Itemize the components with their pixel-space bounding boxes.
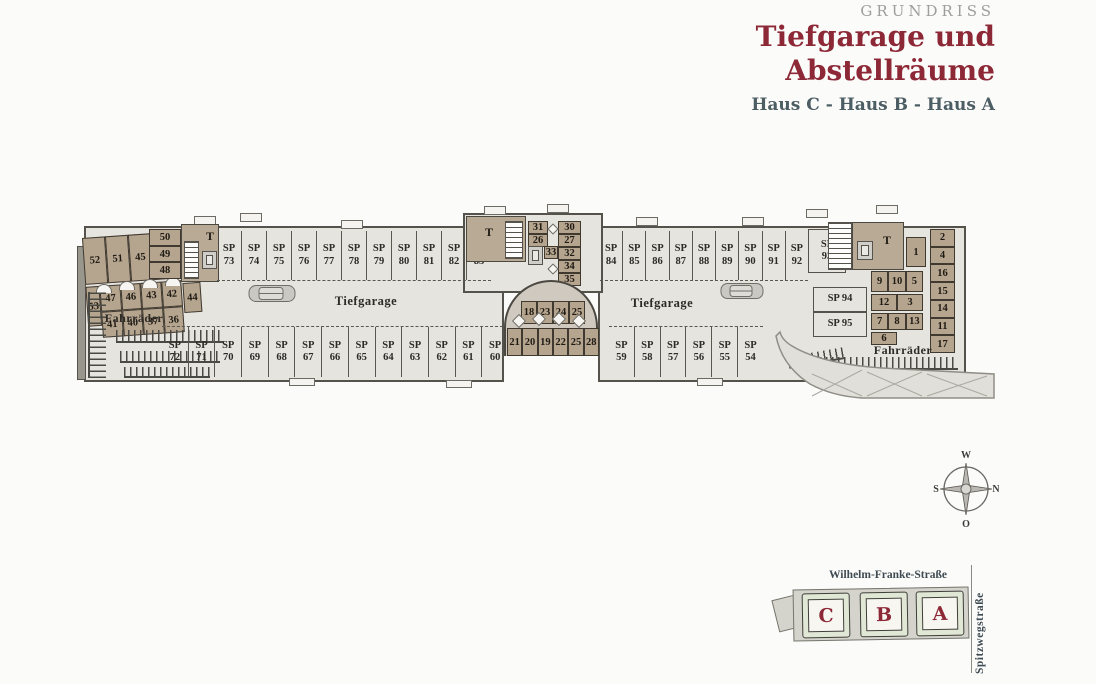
wall-stub bbox=[547, 204, 569, 213]
spot-prefix: SP bbox=[409, 340, 421, 352]
storage-room: 5 bbox=[906, 271, 923, 292]
storage-room: 16 bbox=[930, 264, 955, 282]
spot-number: 74 bbox=[249, 256, 260, 268]
parking-spot: SP74 bbox=[241, 231, 266, 280]
spot-prefix: SP bbox=[223, 243, 235, 255]
compass-rose: W N O S bbox=[933, 448, 999, 530]
parking-spot: SP71 bbox=[188, 327, 215, 377]
compass-left: S bbox=[933, 484, 939, 495]
plot-haus-b: B bbox=[860, 592, 909, 638]
spot-number: 82 bbox=[449, 256, 460, 268]
spot-number: 67 bbox=[303, 352, 314, 364]
storage-room: 31 bbox=[528, 221, 548, 234]
plot-haus-c: C bbox=[802, 593, 851, 639]
room-number: 15 bbox=[937, 286, 948, 297]
spot-number: 60 bbox=[490, 352, 501, 364]
storage-cluster-row1: 9105 bbox=[871, 271, 923, 292]
spot-number: 62 bbox=[436, 352, 447, 364]
parking-spot: SP69 bbox=[241, 327, 268, 377]
spot-number: 61 bbox=[463, 352, 474, 364]
storage-room: 22 bbox=[553, 328, 568, 356]
building-outline: A bbox=[922, 597, 959, 631]
room-number: 30 bbox=[564, 222, 575, 233]
spot-number: 70 bbox=[223, 352, 234, 364]
room-number: 26 bbox=[533, 235, 544, 246]
building-letter: B bbox=[876, 603, 892, 625]
room-number: 43 bbox=[146, 289, 157, 301]
building-outline: C bbox=[808, 599, 845, 633]
parking-spot: SP64 bbox=[375, 327, 402, 377]
street-label-top: Wilhelm-Franke-Straße bbox=[798, 569, 978, 581]
garage-label-left: Tiefgarage bbox=[316, 294, 416, 309]
parking-spot: SP68 bbox=[268, 327, 295, 377]
storage-room: 7 bbox=[871, 313, 888, 330]
room-number: 14 bbox=[937, 303, 948, 314]
spot-number: 56 bbox=[694, 352, 705, 364]
spot-prefix: SP bbox=[249, 340, 261, 352]
storage-room: 48 bbox=[149, 262, 181, 279]
storage-room: 30 bbox=[558, 221, 581, 234]
garage-label-right: Tiefgarage bbox=[612, 296, 712, 311]
parking-spot: SP59 bbox=[609, 327, 634, 377]
storage-room: 8 bbox=[888, 313, 905, 330]
spot-prefix: SP bbox=[675, 243, 687, 255]
parking-spot: SP84 bbox=[600, 231, 622, 280]
parking-spot: SP57 bbox=[660, 327, 686, 377]
spot-prefix: SP bbox=[382, 340, 394, 352]
parking-spot: SP76 bbox=[291, 231, 316, 280]
spot-label: SP 94 bbox=[828, 293, 853, 305]
spot-number: 89 bbox=[722, 256, 733, 268]
spot-number: 69 bbox=[250, 352, 261, 364]
parking-spot: SP85 bbox=[622, 231, 645, 280]
storage-room: 14 bbox=[930, 300, 955, 318]
stairwell-left: T bbox=[181, 224, 219, 282]
room-number: 50 bbox=[160, 232, 171, 243]
spot-prefix: SP bbox=[605, 243, 617, 255]
spot-number: 84 bbox=[606, 256, 617, 268]
page-title-line1: Tiefgarage und bbox=[751, 20, 995, 54]
spot-number: 55 bbox=[719, 352, 730, 364]
storage-room: 50 bbox=[149, 229, 181, 246]
spot-prefix: SP bbox=[698, 243, 710, 255]
parking-spot: SP89 bbox=[715, 231, 738, 280]
parking-row-bottom-left: SP72SP71SP70SP69SP68SP67SP66SP65SP64SP63… bbox=[162, 326, 508, 377]
spot-prefix: SP bbox=[615, 340, 627, 352]
car-icon bbox=[248, 284, 296, 308]
room-number: 34 bbox=[564, 261, 575, 272]
storage-room: 10 bbox=[888, 271, 905, 292]
parking-spot: SP91 bbox=[762, 231, 785, 280]
room-number: 7 bbox=[877, 316, 882, 327]
page-title-line2: Abstellräume bbox=[751, 54, 995, 88]
spot-prefix: SP bbox=[275, 340, 287, 352]
parking-spot: SP72 bbox=[162, 327, 188, 377]
spot-prefix: SP bbox=[348, 243, 360, 255]
spot-number: 68 bbox=[276, 352, 287, 364]
storage-room: 1 bbox=[906, 237, 926, 267]
room-number: 49 bbox=[160, 249, 171, 260]
parking-spot: SP79 bbox=[366, 231, 391, 280]
spot-number: 79 bbox=[374, 256, 385, 268]
storage-room: 3 bbox=[897, 294, 923, 311]
elevator-icon bbox=[528, 246, 543, 265]
spot-number: 80 bbox=[399, 256, 410, 268]
elevator-icon bbox=[857, 241, 873, 260]
room-number: 51 bbox=[112, 253, 123, 265]
room-number: 45 bbox=[135, 252, 146, 264]
spot-number: 63 bbox=[410, 352, 421, 364]
plot-haus-a: A bbox=[916, 591, 965, 637]
compass-top: W bbox=[961, 450, 971, 461]
page-subtitle: Haus C - Haus B - Haus A bbox=[751, 95, 995, 115]
spot-number: 76 bbox=[299, 256, 310, 268]
spot-prefix: SP bbox=[721, 243, 733, 255]
storage-room: 19 bbox=[538, 328, 553, 356]
compass-right: N bbox=[992, 484, 999, 495]
spot-number: 87 bbox=[676, 256, 687, 268]
spot-prefix: SP bbox=[719, 340, 731, 352]
room-number: 31 bbox=[533, 222, 544, 233]
storage-room: 9 bbox=[871, 271, 888, 292]
room-number: 32 bbox=[564, 248, 575, 259]
spot-number: 71 bbox=[196, 352, 207, 364]
room-number: 25 bbox=[571, 337, 582, 348]
parking-spot: SP67 bbox=[294, 327, 321, 377]
parking-spot: SP56 bbox=[685, 327, 711, 377]
stairs-icon bbox=[184, 241, 199, 279]
building-outline: B bbox=[866, 598, 903, 632]
parking-spot: SP58 bbox=[634, 327, 660, 377]
door-swing bbox=[547, 223, 558, 234]
wall-stub bbox=[876, 205, 898, 214]
spot-prefix: SP bbox=[248, 243, 260, 255]
parking-spot: SP86 bbox=[645, 231, 668, 280]
room-number: 3 bbox=[907, 297, 912, 308]
room-number: 9 bbox=[877, 276, 882, 287]
stairwell-label: T bbox=[485, 225, 493, 240]
wall-stub bbox=[289, 378, 315, 386]
spot-number: 54 bbox=[745, 352, 756, 364]
spot-prefix: SP bbox=[744, 340, 756, 352]
parking-spot: SP87 bbox=[669, 231, 692, 280]
spot-prefix: SP bbox=[462, 340, 474, 352]
parking-spot: SP81 bbox=[416, 231, 441, 280]
parking-spot: SP63 bbox=[401, 327, 428, 377]
spot-prefix: SP bbox=[169, 340, 181, 352]
spot-prefix: SP bbox=[693, 340, 705, 352]
spot-prefix: SP bbox=[323, 243, 335, 255]
parking-spot: SP55 bbox=[711, 327, 737, 377]
storage-stack-left: 504948 bbox=[149, 229, 181, 279]
storage-room: 4 bbox=[930, 247, 955, 265]
parking-row-top-left: SP73SP74SP75SP76SP77SP78SP79SP80SP81SP82… bbox=[217, 231, 491, 281]
room-number: 28 bbox=[586, 337, 597, 348]
stairwell-label: T bbox=[883, 233, 891, 248]
spot-number: 78 bbox=[349, 256, 360, 268]
storage-room: 32 bbox=[558, 247, 581, 260]
storage-cluster-row2: 123 bbox=[871, 294, 923, 311]
room-number: 4 bbox=[940, 250, 945, 261]
wall-stub bbox=[742, 217, 764, 226]
room-number: 1 bbox=[913, 247, 918, 258]
header: GRUNDRISS Tiefgarage und Abstellräume Ha… bbox=[751, 2, 995, 115]
spot-number: 90 bbox=[745, 256, 756, 268]
room-number: 46 bbox=[125, 291, 136, 303]
spot-number: 65 bbox=[356, 352, 367, 364]
spot-label: SP 95 bbox=[828, 318, 853, 330]
storage-room: 49 bbox=[149, 246, 181, 263]
spot-prefix: SP bbox=[768, 243, 780, 255]
storage-stack-mid-left: 3126 bbox=[528, 221, 548, 244]
parking-spot: SP90 bbox=[738, 231, 761, 280]
spot-prefix: SP bbox=[298, 243, 310, 255]
spot-prefix: SP bbox=[398, 243, 410, 255]
stairs-icon bbox=[828, 222, 852, 270]
storage-room: 13 bbox=[906, 313, 923, 330]
spot-prefix: SP bbox=[667, 340, 679, 352]
ramp bbox=[762, 330, 998, 410]
parking-spot: SP62 bbox=[428, 327, 455, 377]
wall-stub bbox=[636, 217, 658, 226]
spot-prefix: SP bbox=[448, 243, 460, 255]
spot-number: 72 bbox=[170, 352, 181, 364]
storage-room: 51 bbox=[105, 235, 131, 283]
room-number: 47 bbox=[105, 292, 116, 304]
storage-room: 27 bbox=[558, 234, 581, 247]
spot-number: 88 bbox=[699, 256, 710, 268]
storage-room: 33 bbox=[544, 246, 558, 259]
spot-number: 57 bbox=[668, 352, 679, 364]
spot-number: 77 bbox=[324, 256, 335, 268]
parking-spot: SP61 bbox=[455, 327, 482, 377]
car-icon bbox=[720, 282, 764, 305]
spot-number: 64 bbox=[383, 352, 394, 364]
bike-rack bbox=[88, 292, 106, 378]
room-number: 44 bbox=[187, 292, 198, 304]
storage-stack-mid-right: 3027323435 bbox=[558, 221, 581, 281]
spot-number: 86 bbox=[652, 256, 663, 268]
eyebrow-label: GRUNDRISS bbox=[751, 2, 995, 20]
storage-row-bump-bottom: 212019222528 bbox=[507, 328, 599, 356]
storage-room: 44 bbox=[182, 282, 202, 313]
spot-prefix: SP bbox=[273, 243, 285, 255]
wall-stub bbox=[697, 378, 723, 386]
storage-room: 25 bbox=[568, 328, 583, 356]
bikes-label-left: Fahrräder bbox=[94, 311, 174, 326]
storage-room: 15 bbox=[930, 282, 955, 300]
room-number: 33 bbox=[546, 247, 557, 258]
spot-prefix: SP bbox=[436, 340, 448, 352]
room-number: 8 bbox=[894, 316, 899, 327]
wall-stub bbox=[341, 220, 363, 229]
spot-number: 75 bbox=[274, 256, 285, 268]
stairs-icon bbox=[505, 221, 523, 259]
building-letter: C bbox=[818, 604, 834, 626]
parking-row-top-right: SP84SP85SP86SP87SP88SP89SP90SP91SP92 bbox=[600, 231, 808, 281]
building-letter: A bbox=[932, 602, 947, 624]
spot-prefix: SP bbox=[641, 340, 653, 352]
spot-number: 81 bbox=[424, 256, 435, 268]
room-number: 10 bbox=[892, 276, 903, 287]
room-number: 2 bbox=[940, 232, 945, 243]
room-number: 42 bbox=[166, 288, 177, 300]
parking-spot: SP54 bbox=[737, 327, 763, 377]
spot-prefix: SP bbox=[329, 340, 341, 352]
street-edge-line bbox=[971, 565, 972, 673]
parking-spot: SP77 bbox=[316, 231, 341, 280]
spot-number: 91 bbox=[768, 256, 779, 268]
parcel: C B A bbox=[793, 586, 970, 641]
room-number: 16 bbox=[937, 268, 948, 279]
room-number: 27 bbox=[564, 235, 575, 246]
room-number: 12 bbox=[879, 297, 890, 308]
spot-prefix: SP bbox=[423, 243, 435, 255]
spot-number: 59 bbox=[616, 352, 627, 364]
door-swing bbox=[142, 279, 158, 288]
parking-row-bottom-right: SP59SP58SP57SP56SP55SP54 bbox=[609, 326, 763, 377]
spot-prefix: SP bbox=[651, 243, 663, 255]
storage-room: 28 bbox=[584, 328, 599, 356]
spot-number: 66 bbox=[330, 352, 341, 364]
spot-prefix: SP bbox=[356, 340, 368, 352]
parking-spot-94: SP 94 bbox=[813, 287, 867, 312]
room-number: 13 bbox=[909, 316, 920, 327]
room-number: 5 bbox=[912, 276, 917, 287]
door-swing bbox=[547, 263, 558, 274]
spot-prefix: SP bbox=[222, 340, 234, 352]
parking-spot: SP66 bbox=[321, 327, 348, 377]
storage-room: 52 bbox=[82, 236, 108, 284]
spot-number: 58 bbox=[642, 352, 653, 364]
parking-spot: SP73 bbox=[217, 231, 241, 280]
parking-spot: SP78 bbox=[341, 231, 366, 280]
parking-spot: SP88 bbox=[692, 231, 715, 280]
storage-room: 20 bbox=[522, 328, 537, 356]
room-number: 22 bbox=[555, 337, 566, 348]
parking-spot: SP65 bbox=[348, 327, 375, 377]
stairwell-label: T bbox=[206, 229, 214, 244]
room-number: 19 bbox=[540, 337, 551, 348]
storage-cluster-row3: 7813 bbox=[871, 313, 923, 330]
wall-stub bbox=[240, 213, 262, 222]
elevator-icon bbox=[202, 251, 217, 269]
parking-spot: SP75 bbox=[266, 231, 291, 280]
spot-prefix: SP bbox=[489, 340, 501, 352]
haus-b-core: T 3126 33 3027323435 bbox=[463, 213, 603, 293]
parking-spot: SP70 bbox=[214, 327, 241, 377]
parking-spot: SP80 bbox=[391, 231, 416, 280]
spot-prefix: SP bbox=[302, 340, 314, 352]
storage-room: 21 bbox=[507, 328, 522, 356]
compass-bottom: O bbox=[962, 519, 970, 530]
wall-stub bbox=[446, 380, 472, 388]
spot-prefix: SP bbox=[195, 340, 207, 352]
room-number: 21 bbox=[509, 337, 520, 348]
room-number: 52 bbox=[89, 255, 100, 267]
spot-number: 85 bbox=[629, 256, 640, 268]
spot-prefix: SP bbox=[628, 243, 640, 255]
spot-prefix: SP bbox=[373, 243, 385, 255]
storage-room: 2 bbox=[930, 229, 955, 247]
spot-prefix: SP bbox=[744, 243, 756, 255]
door-swing bbox=[119, 281, 135, 290]
spot-number: 73 bbox=[224, 256, 235, 268]
street-label-right: Spitzwegstraße bbox=[974, 574, 986, 674]
storage-room: 12 bbox=[871, 294, 897, 311]
room-number: 48 bbox=[160, 265, 171, 276]
room-number: 20 bbox=[525, 337, 536, 348]
storage-room: 34 bbox=[558, 260, 581, 273]
